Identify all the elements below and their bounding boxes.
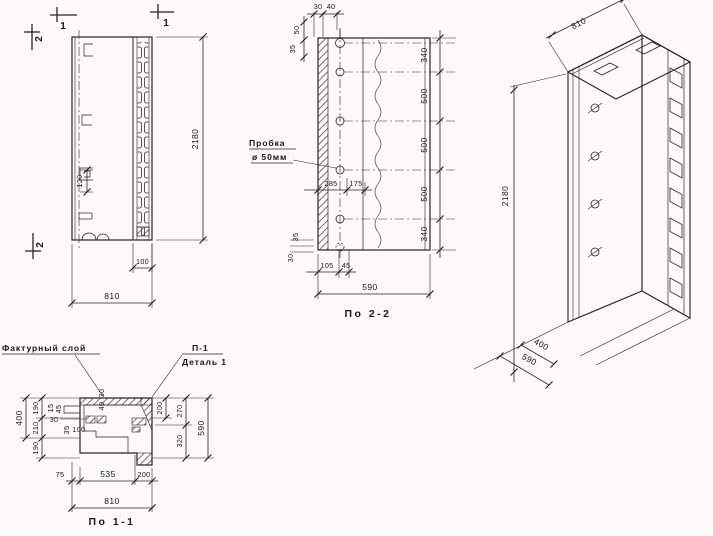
front-view: 1 1 2 2 2180 810 100 120 [24, 4, 208, 308]
dim-sec11-810: 810 [104, 496, 119, 506]
dim-left-50: 50 [292, 26, 301, 35]
dim-sec11-590: 590 [196, 420, 206, 435]
iso-plug-holes [588, 103, 602, 257]
blueprint-drawing: 1 1 2 2 2180 810 100 120 [0, 0, 713, 536]
section-1-1: Фактурный слой П-1 Деталь 1 400 190 210 … [2, 343, 227, 528]
dim-topc-30: 30 [97, 389, 106, 398]
dim-sec22-width: 590 [362, 282, 377, 292]
dim-chain-340a: 340 [419, 47, 429, 62]
dim-front-width: 810 [104, 291, 119, 301]
cut-mark-2-bottom: 2 [35, 242, 46, 248]
embedded-plate [132, 418, 146, 425]
dim-top-30: 30 [314, 2, 323, 11]
channel-strip-cells [138, 42, 149, 236]
detail-flag-name: Деталь 1 [182, 357, 227, 367]
embedded-plate [97, 416, 106, 423]
sec22-outline [318, 28, 455, 258]
detail-flag-ref: П-1 [192, 343, 209, 353]
dim-top-40: 40 [327, 2, 336, 11]
plug-label: Пробка [249, 138, 285, 148]
blueprint-page: 1 1 2 2 2180 810 100 120 [0, 0, 713, 536]
facing-layer-hatch [318, 38, 328, 250]
dim-iso-height: 2180 [500, 186, 510, 207]
dim-left-35: 35 [288, 45, 297, 54]
dim-45: 45 [342, 261, 351, 270]
dim-chain-500a: 500 [419, 88, 429, 103]
section-2-2-title: По 2-2 [344, 308, 391, 320]
dim-inner-35: 35 [62, 426, 71, 435]
dim-left-190b: 190 [31, 442, 40, 455]
embedded-plate [86, 416, 95, 423]
dim-sec11-400: 400 [14, 410, 24, 425]
dim-topc-40: 40 [97, 402, 106, 411]
dim-bot-30: 30 [286, 254, 295, 263]
section-1-1-title: По 1-1 [88, 516, 135, 528]
dim-left-190a: 190 [31, 402, 40, 415]
iso-body [568, 35, 690, 322]
dim-inner-100: 100 [73, 425, 86, 434]
dim-285: 285 [325, 179, 338, 188]
front-outline [72, 30, 152, 248]
dim-chain-340b: 340 [419, 226, 429, 241]
cut-mark-2-top: 2 [34, 36, 45, 42]
dim-175: 175 [350, 179, 363, 188]
dim-iso-400: 400 [532, 336, 550, 352]
insulation-wavy-line [375, 40, 381, 248]
dim-inner-30: 30 [50, 415, 59, 424]
lifting-socket [636, 42, 660, 54]
dim-front-height: 2180 [190, 129, 200, 150]
dim-bottom-75: 75 [56, 470, 65, 479]
dim-front-detail: 120 [75, 175, 84, 188]
dim-strip-width: 100 [136, 257, 149, 266]
cut-mark-1-right: 1 [163, 18, 169, 29]
dim-iso-width: 810 [570, 15, 588, 31]
dim-chain-500c: 500 [419, 186, 429, 201]
lifting-socket [594, 63, 618, 75]
dim-chain-500b: 500 [419, 137, 429, 152]
dim-right-320: 320 [175, 435, 184, 448]
iso-view: 810 2180 400 590 [474, 0, 690, 389]
dim-left-210: 210 [31, 422, 40, 435]
plug-diameter-label: ø 50мм [252, 152, 287, 162]
facing-layer-label: Фактурный слой [2, 343, 86, 353]
dim-right-270: 270 [175, 405, 184, 418]
dim-105: 105 [321, 261, 334, 270]
dim-bottom-200: 200 [138, 470, 151, 479]
section-2-2: 30 40 50 35 340 500 500 500 340 285 175 … [249, 2, 456, 320]
dim-bottom-535: 535 [100, 469, 115, 479]
dim-right-200i: 200 [155, 402, 164, 415]
dim-bot-35: 35 [291, 233, 300, 242]
cut-mark-1-left: 1 [60, 21, 66, 32]
dim-notch-45: 45 [54, 405, 63, 414]
